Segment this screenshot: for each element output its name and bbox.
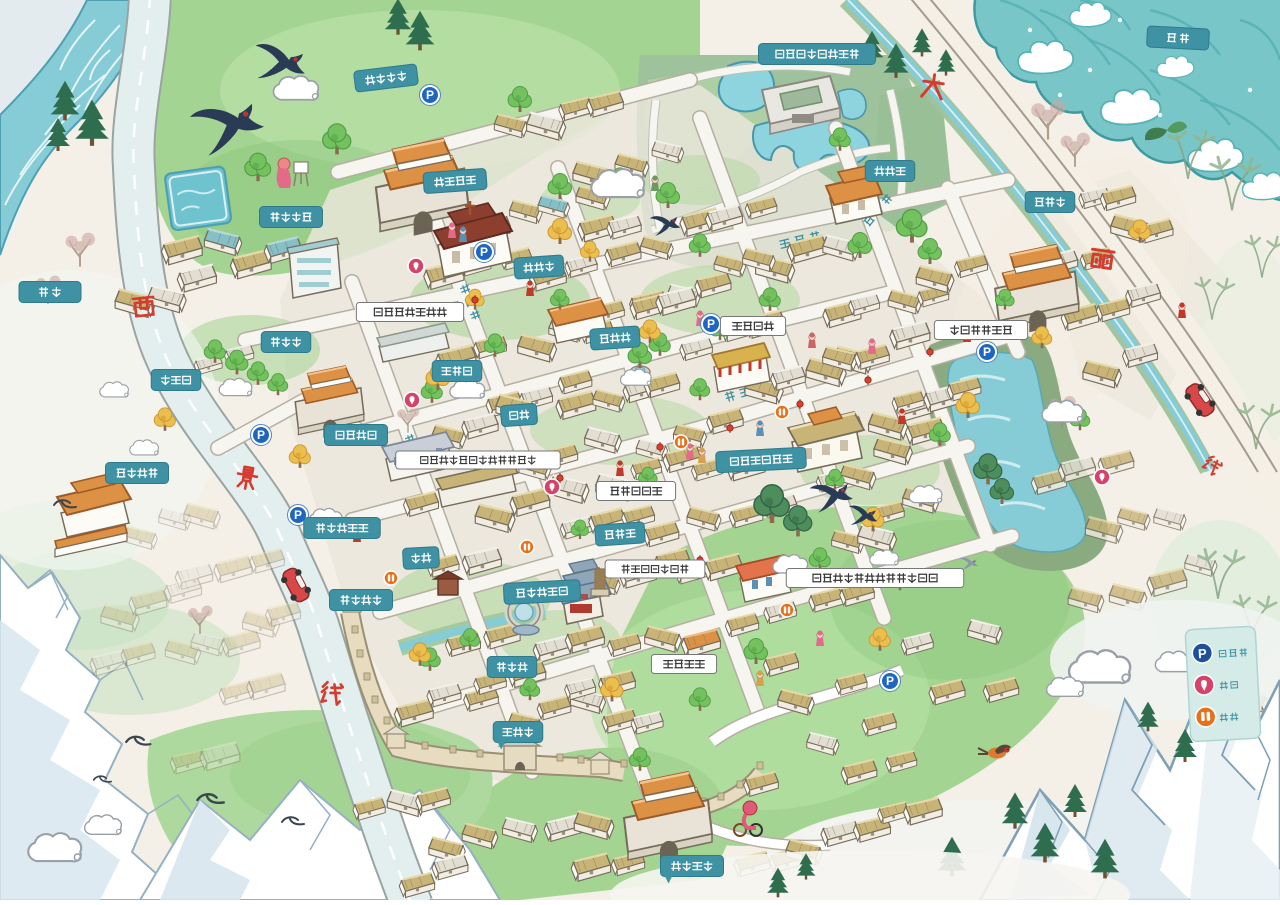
svg-text:P: P xyxy=(480,245,488,259)
svg-text:P: P xyxy=(707,317,715,331)
svg-text:P: P xyxy=(257,428,265,442)
svg-text:P: P xyxy=(1198,646,1208,661)
svg-text:P: P xyxy=(886,674,894,688)
svg-text:P: P xyxy=(294,508,302,522)
svg-text:P: P xyxy=(983,345,991,359)
svg-text:P: P xyxy=(426,88,434,102)
